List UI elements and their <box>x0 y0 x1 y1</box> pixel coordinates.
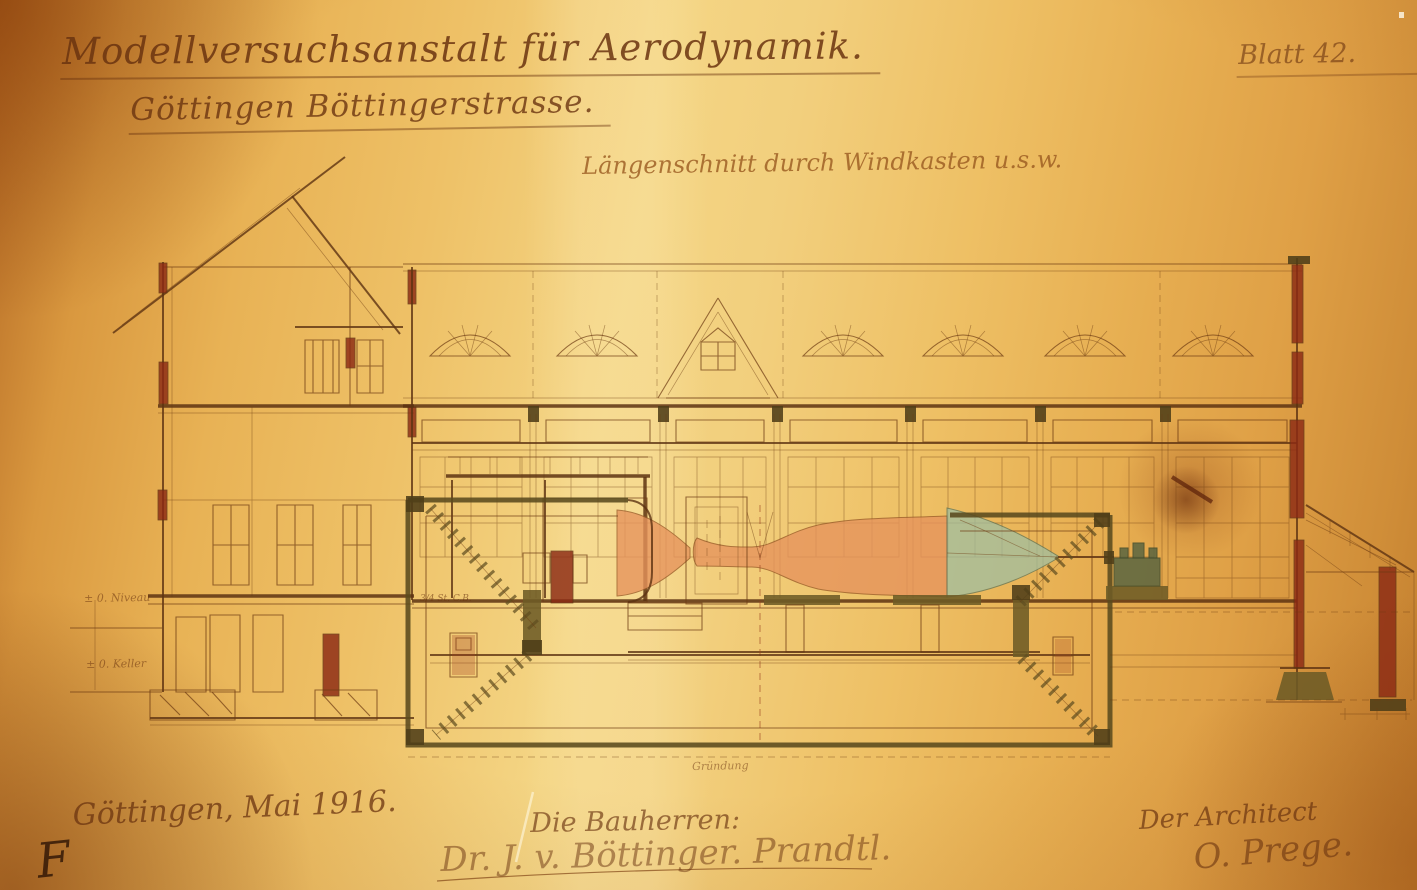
drawing-title-line2: Göttingen Böttingerstrasse. <box>128 84 611 135</box>
aged-paper-sheet: Modellversuchsanstalt für Aerodynamik. G… <box>0 0 1417 890</box>
sheet-number: Blatt 42. <box>1236 37 1417 78</box>
drive-motor <box>1104 543 1168 600</box>
paper-marks <box>437 12 1404 881</box>
masonry-note: 3/4 St. C.B. <box>420 594 472 604</box>
roof-dormer <box>658 298 778 398</box>
left-building-section <box>113 157 416 725</box>
level-ground-label: ± 0. Niveau <box>84 591 150 605</box>
level-basement-label: ± 0. Keller <box>86 657 146 671</box>
right-annex-section <box>1266 256 1414 711</box>
foundation-note: Gründung <box>692 759 749 773</box>
hall-roof-section <box>403 264 1302 422</box>
drawing-title-line1: Modellversuchsanstalt für Aerodynamik. <box>60 24 880 80</box>
nozzle-diffuser <box>693 516 947 597</box>
corner-mark: F <box>34 831 73 890</box>
